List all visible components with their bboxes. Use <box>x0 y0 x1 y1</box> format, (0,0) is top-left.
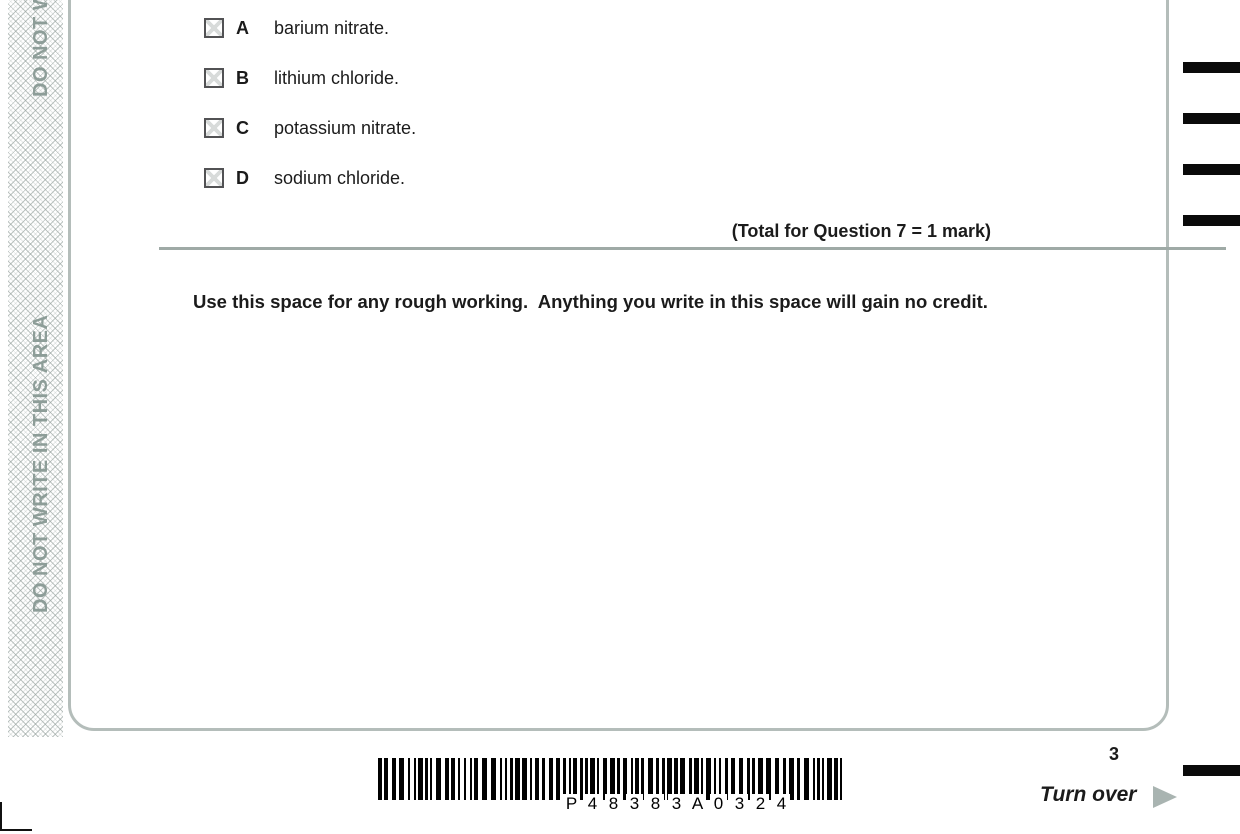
option-text-a: barium nitrate. <box>274 17 389 39</box>
section-divider <box>159 247 1226 250</box>
do-not-write-margin: DO NOT WRITE IN THIS AREA DO NOT WRITE I… <box>8 0 63 737</box>
turn-over-arrow-icon <box>1153 786 1177 808</box>
page-number: 3 <box>1100 744 1128 765</box>
registration-bar <box>1183 215 1240 226</box>
barcode: P48383A0324 <box>378 758 846 800</box>
question-frame: 7The metal salt which gives a red colour… <box>68 0 1169 731</box>
corner-crop-mark <box>0 802 2 831</box>
option-text-d: sodium chloride. <box>274 167 405 189</box>
answer-checkbox-d[interactable] <box>204 168 224 188</box>
exam-paper-page: DO NOT WRITE IN THIS AREA DO NOT WRITE I… <box>0 0 1240 834</box>
barcode-label: P48383A0324 <box>563 794 794 814</box>
do-not-write-text-middle: DO NOT WRITE IN THIS AREA <box>30 315 53 613</box>
answer-checkbox-c[interactable] <box>204 118 224 138</box>
registration-bar <box>1183 113 1240 124</box>
do-not-write-text-top: DO NOT WRITE IN THIS AREA <box>30 0 53 97</box>
option-row-d: D sodium chloride. <box>204 167 405 189</box>
rough-working-note: Use this space for any rough working. An… <box>193 291 988 313</box>
registration-bar <box>1183 62 1240 73</box>
corner-crop-mark <box>0 829 32 831</box>
answer-checkbox-b[interactable] <box>204 68 224 88</box>
option-letter-d: D <box>236 167 274 189</box>
option-text-b: lithium chloride. <box>274 67 399 89</box>
option-letter-a: A <box>236 17 274 39</box>
question-total-marks: (Total for Question 7 = 1 mark) <box>732 221 991 242</box>
option-letter-b: B <box>236 67 274 89</box>
option-row-a: A barium nitrate. <box>204 17 389 39</box>
option-text-c: potassium nitrate. <box>274 117 416 139</box>
registration-bar <box>1183 765 1240 776</box>
registration-bar <box>1183 164 1240 175</box>
option-letter-c: C <box>236 117 274 139</box>
turn-over-label: Turn over <box>1040 783 1136 807</box>
answer-checkbox-a[interactable] <box>204 18 224 38</box>
option-row-b: B lithium chloride. <box>204 67 399 89</box>
option-row-c: C potassium nitrate. <box>204 117 416 139</box>
